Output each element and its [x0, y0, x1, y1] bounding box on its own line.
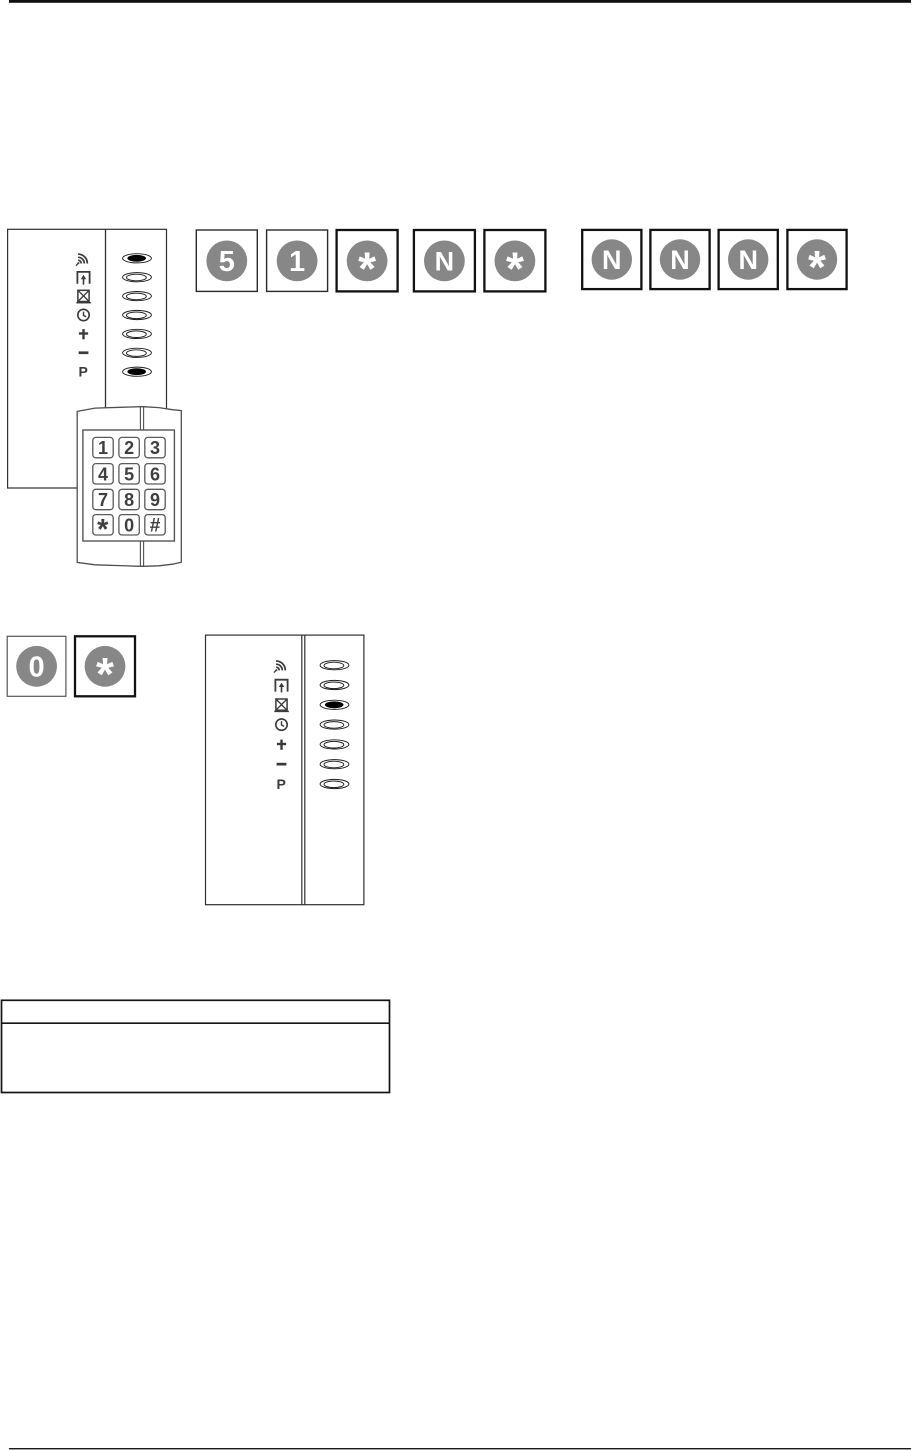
svg-text:0: 0	[124, 515, 134, 535]
svg-text:1: 1	[98, 438, 108, 458]
svg-text:2: 2	[124, 438, 134, 458]
svg-text:#: #	[150, 515, 161, 536]
svg-text:N: N	[738, 245, 758, 275]
svg-text:N: N	[435, 247, 455, 277]
svg-text:*: *	[96, 648, 114, 700]
svg-text:N: N	[602, 245, 622, 275]
svg-text:3: 3	[150, 438, 160, 458]
svg-text:8: 8	[124, 490, 134, 510]
svg-text:5: 5	[219, 246, 235, 278]
svg-text:0: 0	[29, 652, 45, 684]
svg-text:*: *	[506, 243, 524, 295]
svg-text:7: 7	[98, 490, 108, 510]
svg-text:9: 9	[150, 490, 160, 510]
svg-text:*: *	[808, 241, 826, 293]
svg-text:6: 6	[150, 464, 160, 484]
svg-text:4: 4	[98, 464, 108, 484]
svg-text:5: 5	[124, 464, 134, 484]
svg-text:*: *	[358, 243, 376, 295]
svg-text:*: *	[97, 514, 109, 546]
svg-text:1: 1	[289, 246, 305, 278]
svg-text:N: N	[670, 245, 690, 275]
